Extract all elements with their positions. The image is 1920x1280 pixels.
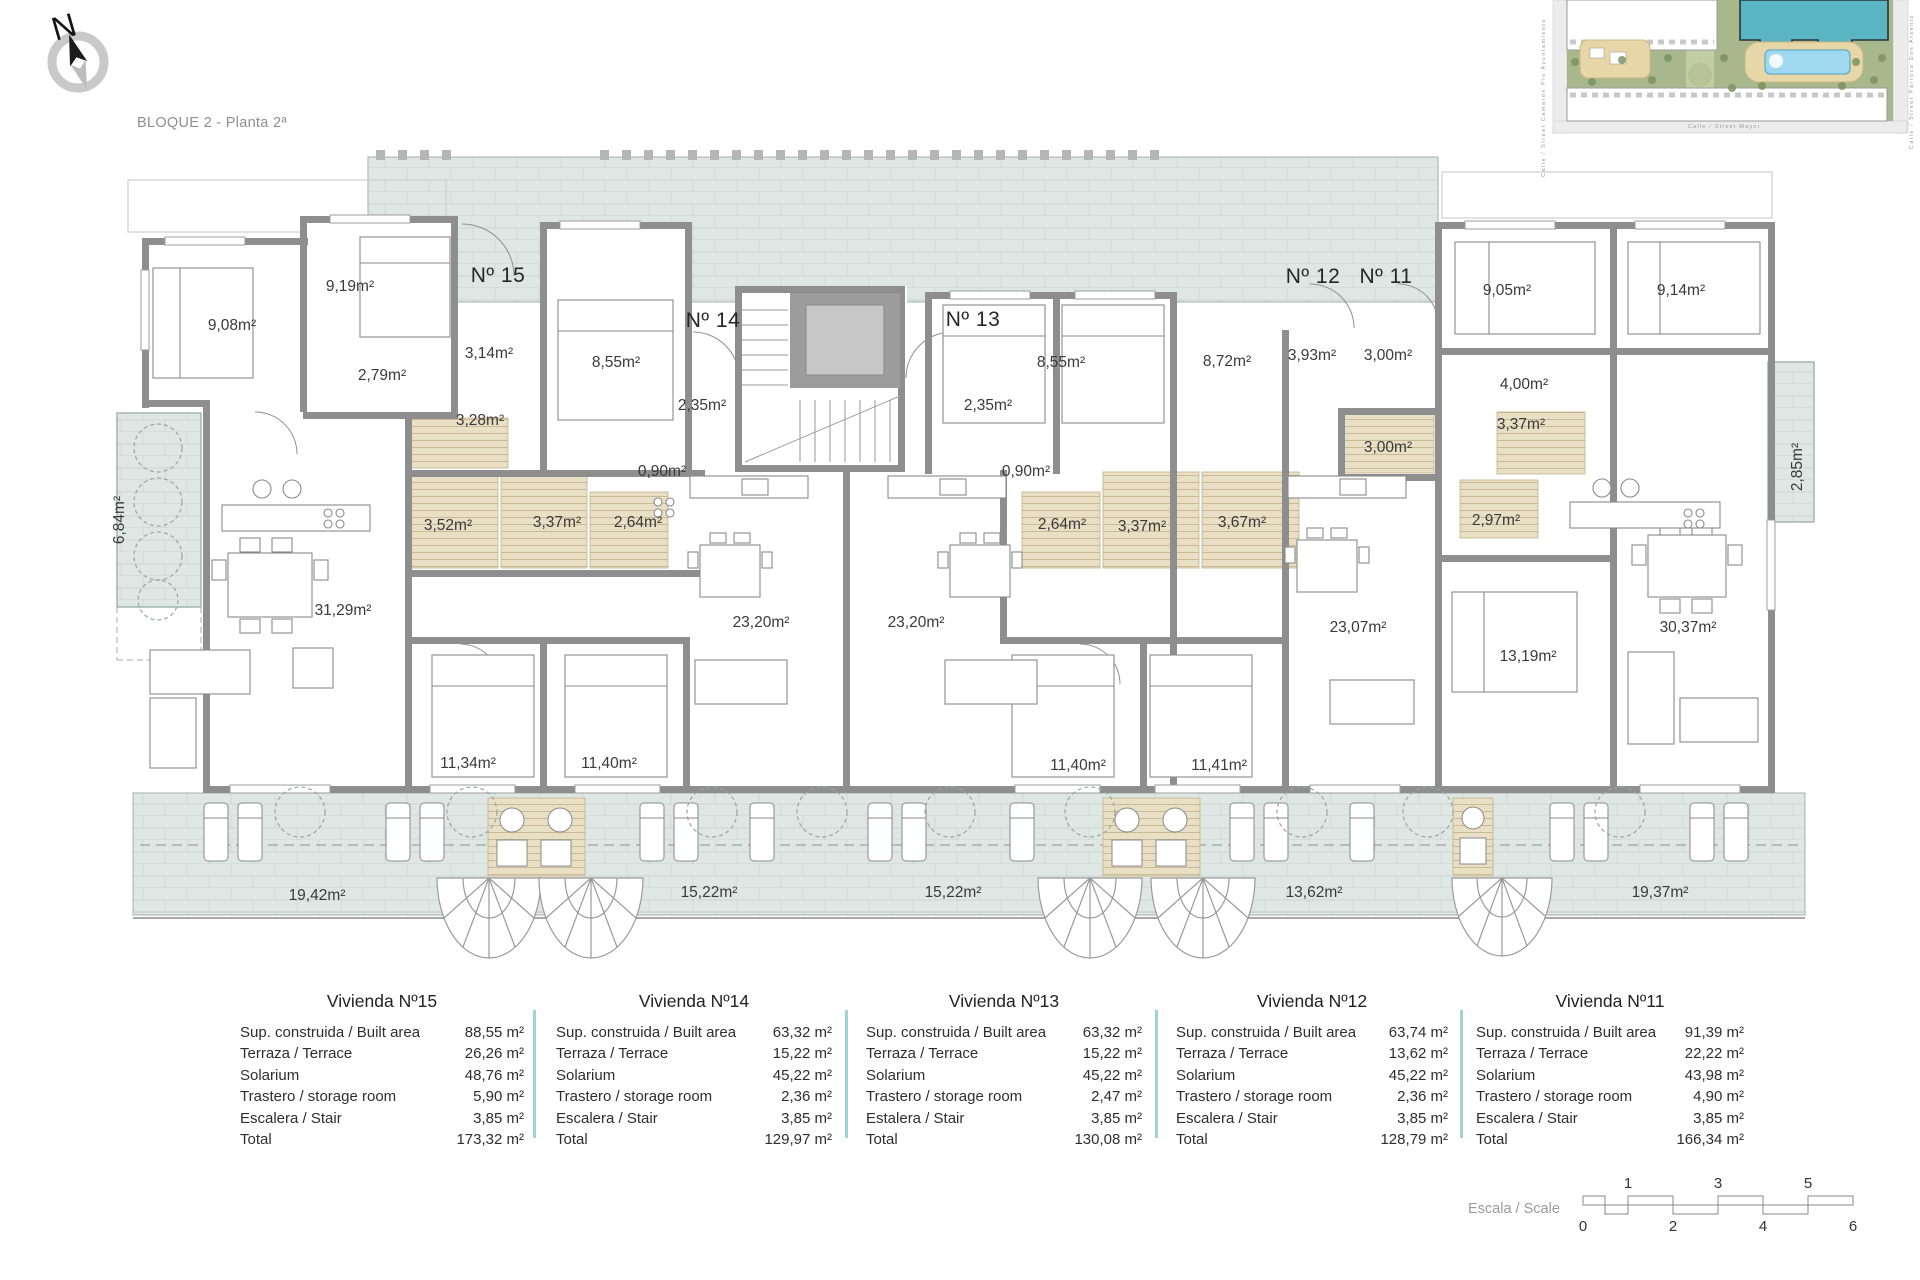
area-table-vivienda-15: Vivienda Nº15 Sup. construida / Built ar… xyxy=(240,991,524,1150)
table-title: Vivienda Nº11 xyxy=(1476,991,1744,1012)
upper-terrace xyxy=(368,157,1438,302)
room-area-label: 2,97m² xyxy=(1472,512,1520,530)
room-area-label: 15,22m² xyxy=(925,884,982,902)
table-title: Vivienda Nº13 xyxy=(866,991,1142,1012)
room-area-label: 4,00m² xyxy=(1500,376,1548,394)
room-area-label: 0,90m² xyxy=(638,463,686,481)
table-row: Trastero / storage room5,90 m² xyxy=(240,1086,524,1107)
table-row: Escalera / Stair3,85 m² xyxy=(240,1108,524,1129)
table-row: Estalera / Stair3,85 m² xyxy=(866,1108,1142,1129)
scale-tick: 2 xyxy=(1669,1218,1677,1235)
room-area-label: 9,05m² xyxy=(1483,282,1531,300)
room-area-label: 3,52m² xyxy=(424,517,472,535)
room-area-label: 9,19m² xyxy=(326,278,374,296)
room-area-label: 9,14m² xyxy=(1657,282,1705,300)
table-row: Terraza / Terrace26,26 m² xyxy=(240,1043,524,1064)
site-plan-inset xyxy=(1540,0,1920,133)
apartment-number-label: Nº 15 xyxy=(471,264,526,288)
room-area-label: 11,40m² xyxy=(1050,757,1106,775)
room-area-label: 23,20m² xyxy=(733,614,790,632)
apartment-number-label: Nº 11 xyxy=(1360,265,1413,289)
room-area-label: 2,35m² xyxy=(964,397,1012,415)
table-divider xyxy=(533,1010,536,1138)
scale-tick: 4 xyxy=(1759,1218,1767,1235)
room-area-label: 2,79m² xyxy=(358,367,406,385)
room-area-label: 13,62m² xyxy=(1286,884,1343,902)
apartment-number-label: Nº 13 xyxy=(946,308,1001,332)
room-area-label: 3,14m² xyxy=(465,345,513,363)
room-area-label: 3,00m² xyxy=(1364,347,1412,365)
street-label-bottom: Calle / Street Mayor xyxy=(1688,124,1761,130)
area-table-vivienda-11: Vivienda Nº11 Sup. construida / Built ar… xyxy=(1476,991,1744,1150)
table-title: Vivienda Nº14 xyxy=(556,991,832,1012)
scale-tick: 1 xyxy=(1624,1175,1632,1192)
room-area-label: 3,37m² xyxy=(533,514,581,532)
room-area-label: 11,41m² xyxy=(1191,757,1247,775)
table-row: Trastero / storage room2,36 m² xyxy=(1176,1086,1448,1107)
room-area-label: 3,37m² xyxy=(1118,518,1166,536)
table-row: Sup. construida / Built area63,32 m² xyxy=(866,1022,1142,1043)
table-divider xyxy=(1155,1010,1158,1138)
room-area-label: 11,40m² xyxy=(581,755,637,773)
table-row: Solarium45,22 m² xyxy=(1176,1065,1448,1086)
room-area-label: 23,07m² xyxy=(1330,619,1387,637)
room-area-label: 13,19m² xyxy=(1500,648,1557,666)
room-area-label: 8,55m² xyxy=(592,354,640,372)
balcony-west xyxy=(117,413,201,607)
table-divider xyxy=(1460,1010,1463,1138)
table-row: Solarium43,98 m² xyxy=(1476,1065,1744,1086)
table-row: Sup. construida / Built area91,39 m² xyxy=(1476,1022,1744,1043)
apartment-number-label: Nº 14 xyxy=(686,309,741,333)
table-row: Total129,97 m² xyxy=(556,1129,832,1150)
scale-label: Escala / Scale xyxy=(1468,1201,1560,1217)
area-table-vivienda-12: Vivienda Nº12 Sup. construida / Built ar… xyxy=(1176,991,1448,1150)
room-area-label: 2,64m² xyxy=(614,514,662,532)
street-label-right: Calle / Street Párroco Don Arsenio xyxy=(1909,14,1915,149)
room-area-label: 6,84m² xyxy=(111,496,129,544)
room-area-label: 2,85m² xyxy=(1789,443,1807,491)
scale-bar xyxy=(1583,1196,1853,1214)
table-row: Solarium48,76 m² xyxy=(240,1065,524,1086)
table-row: Trastero / storage room2,36 m² xyxy=(556,1086,832,1107)
room-area-label: 15,22m² xyxy=(681,884,738,902)
table-row: Trastero / storage room4,90 m² xyxy=(1476,1086,1744,1107)
room-area-label: 8,72m² xyxy=(1203,353,1251,371)
area-table-vivienda-13: Vivienda Nº13 Sup. construida / Built ar… xyxy=(866,991,1142,1150)
table-row: Terraza / Terrace13,62 m² xyxy=(1176,1043,1448,1064)
room-area-label: 3,00m² xyxy=(1364,439,1412,457)
area-table-vivienda-14: Vivienda Nº14 Sup. construida / Built ar… xyxy=(556,991,832,1150)
table-row: Sup. construida / Built area63,74 m² xyxy=(1176,1022,1448,1043)
table-title: Vivienda Nº12 xyxy=(1176,991,1448,1012)
scale-tick: 5 xyxy=(1804,1175,1812,1192)
street-label-left: Calle / Street Camarón Pío Ayuntamiento xyxy=(1541,18,1547,177)
table-row: Total128,79 m² xyxy=(1176,1129,1448,1150)
table-row: Terraza / Terrace15,22 m² xyxy=(866,1043,1142,1064)
room-area-label: 30,37m² xyxy=(1660,619,1717,637)
room-area-label: 23,20m² xyxy=(888,614,945,632)
table-row: Escalera / Stair3,85 m² xyxy=(1476,1108,1744,1129)
table-row: Sup. construida / Built area88,55 m² xyxy=(240,1022,524,1043)
room-area-label: 9,08m² xyxy=(208,317,256,335)
room-area-label: 0,90m² xyxy=(1002,463,1050,481)
scale-tick: 6 xyxy=(1849,1218,1857,1235)
page-title: BLOQUE 2 - Planta 2ª xyxy=(137,115,287,131)
table-row: Solarium45,22 m² xyxy=(556,1065,832,1086)
table-row: Trastero / storage room2,47 m² xyxy=(866,1086,1142,1107)
table-title: Vivienda Nº15 xyxy=(240,991,524,1012)
room-area-label: 11,34m² xyxy=(440,755,496,773)
room-area-label: 2,64m² xyxy=(1038,516,1086,534)
room-area-label: 19,37m² xyxy=(1632,884,1689,902)
table-row: Total166,34 m² xyxy=(1476,1129,1744,1150)
apartment-number-label: Nº 12 xyxy=(1286,265,1341,289)
room-area-label: 2,35m² xyxy=(678,397,726,415)
table-row: Terraza / Terrace22,22 m² xyxy=(1476,1043,1744,1064)
room-area-label: 3,37m² xyxy=(1497,416,1545,434)
room-area-label: 8,55m² xyxy=(1037,354,1085,372)
table-row: Solarium45,22 m² xyxy=(866,1065,1142,1086)
room-area-label: 3,93m² xyxy=(1288,347,1336,365)
table-divider xyxy=(845,1010,848,1138)
floor-plan-sheet: BLOQUE 2 - Planta 2ª N Nº 15Nº 14Nº 13Nº… xyxy=(0,0,1920,1280)
room-area-label: 31,29m² xyxy=(315,602,372,620)
room-area-label: 3,67m² xyxy=(1218,514,1266,532)
scale-tick: 3 xyxy=(1714,1175,1722,1192)
table-row: Escalera / Stair3,85 m² xyxy=(1176,1108,1448,1129)
table-row: Sup. construida / Built area63,32 m² xyxy=(556,1022,832,1043)
room-area-label: 3,28m² xyxy=(456,412,504,430)
table-row: Terraza / Terrace15,22 m² xyxy=(556,1043,832,1064)
scale-tick: 0 xyxy=(1579,1218,1587,1235)
table-row: Total130,08 m² xyxy=(866,1129,1142,1150)
table-row: Escalera / Stair3,85 m² xyxy=(556,1108,832,1129)
table-row: Total173,32 m² xyxy=(240,1129,524,1150)
room-area-label: 19,42m² xyxy=(289,887,346,905)
